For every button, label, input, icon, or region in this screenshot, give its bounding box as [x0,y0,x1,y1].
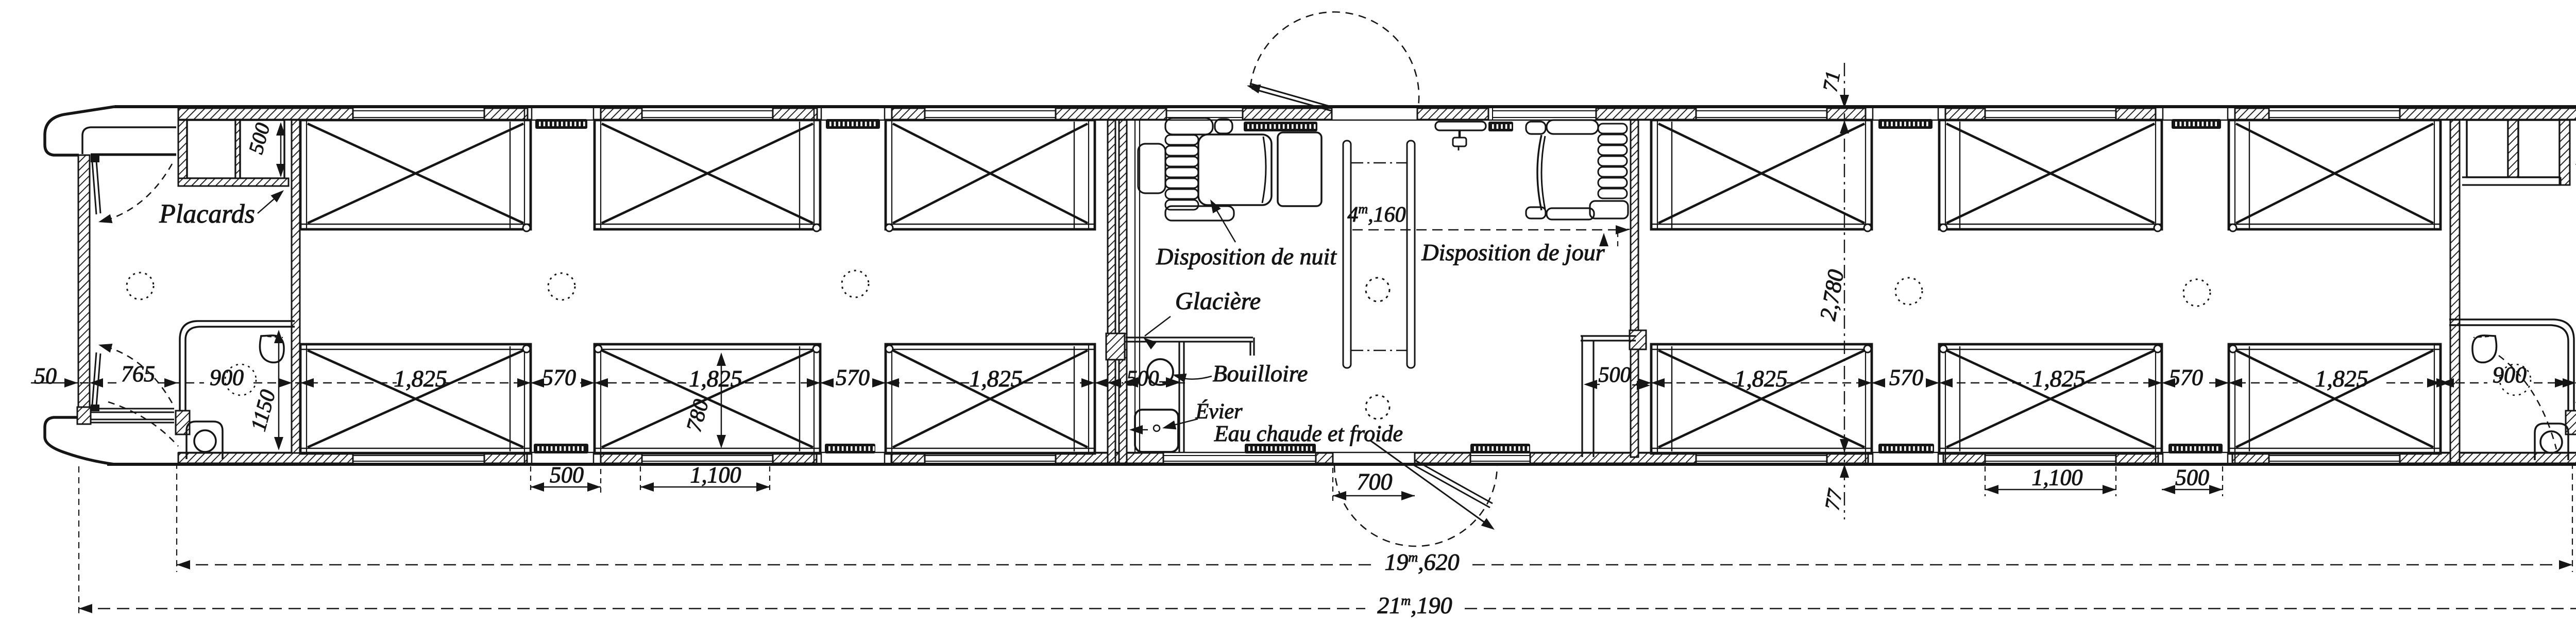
svg-text:900: 900 [2493,362,2527,388]
svg-text:1,825: 1,825 [2315,365,2368,392]
svg-text:570: 570 [2169,365,2203,390]
svg-text:1,825: 1,825 [969,365,1023,392]
svg-text:500: 500 [1127,367,1159,391]
svg-text:Bouilloire: Bouilloire [1213,360,1308,386]
svg-text:71: 71 [1818,69,1844,93]
svg-text:Glacière: Glacière [1175,288,1261,315]
svg-text:900: 900 [210,365,244,390]
svg-text:500: 500 [2175,465,2209,490]
svg-text:570: 570 [836,365,870,390]
svg-text:700: 700 [1357,468,1393,495]
svg-text:1,825: 1,825 [2032,365,2086,392]
svg-text:1,825: 1,825 [689,365,742,392]
svg-text:Eau chaude et froide: Eau chaude et froide [1214,421,1403,446]
svg-text:Placards: Placards [159,199,255,229]
svg-text:765: 765 [121,361,155,386]
svg-text:1,825: 1,825 [1734,365,1788,392]
svg-text:1,100: 1,100 [690,462,741,487]
svg-text:Disposition de nuit: Disposition de nuit [1156,243,1337,270]
svg-text:4m,160: 4m,160 [1347,201,1405,227]
svg-text:Évier: Évier [1195,399,1243,424]
svg-text:50: 50 [34,363,57,389]
svg-text:21m,190: 21m,190 [1377,592,1452,618]
svg-text:1,825: 1,825 [394,365,447,392]
svg-text:570: 570 [1889,365,1923,390]
svg-text:570: 570 [542,365,576,390]
svg-text:500: 500 [1599,363,1631,387]
svg-text:1,100: 1,100 [2032,465,2083,490]
svg-text:500: 500 [550,462,584,487]
svg-text:Disposition de jour: Disposition de jour [1421,239,1605,265]
svg-text:19m,620: 19m,620 [1384,549,1459,575]
